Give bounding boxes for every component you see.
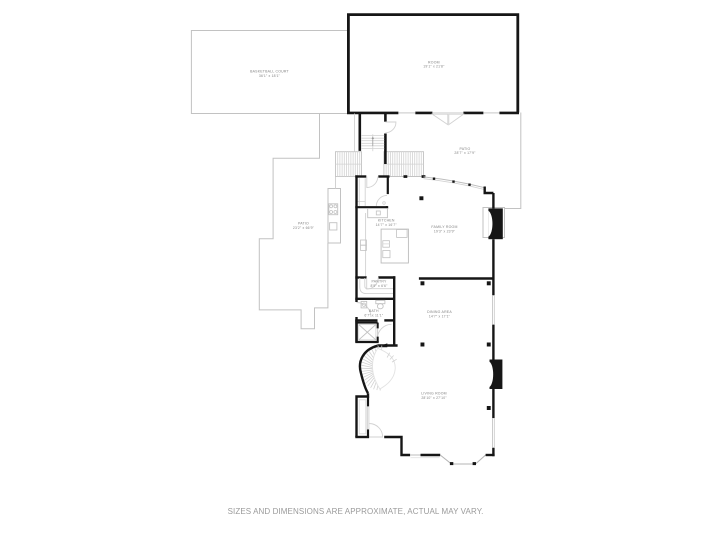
- svg-text:28'10" x 27'10": 28'10" x 27'10": [421, 396, 447, 400]
- svg-text:6'7" x 11'1": 6'7" x 11'1": [364, 313, 383, 317]
- svg-text:36'1" x 18'1": 36'1" x 18'1": [259, 74, 281, 78]
- svg-text:28'7" x 17'9": 28'7" x 17'9": [454, 151, 476, 155]
- svg-text:23'2" x 66'9": 23'2" x 66'9": [293, 226, 315, 230]
- svg-text:19'3" x 23'9": 19'3" x 23'9": [434, 230, 456, 234]
- svg-text:14'7" x 17'1": 14'7" x 17'1": [429, 315, 451, 319]
- svg-text:8'9" x 6'6": 8'9" x 6'6": [370, 284, 388, 288]
- svg-text:19'1" x 21'8": 19'1" x 21'8": [423, 65, 445, 69]
- svg-text:14'7" x 16'7": 14'7" x 16'7": [376, 223, 398, 227]
